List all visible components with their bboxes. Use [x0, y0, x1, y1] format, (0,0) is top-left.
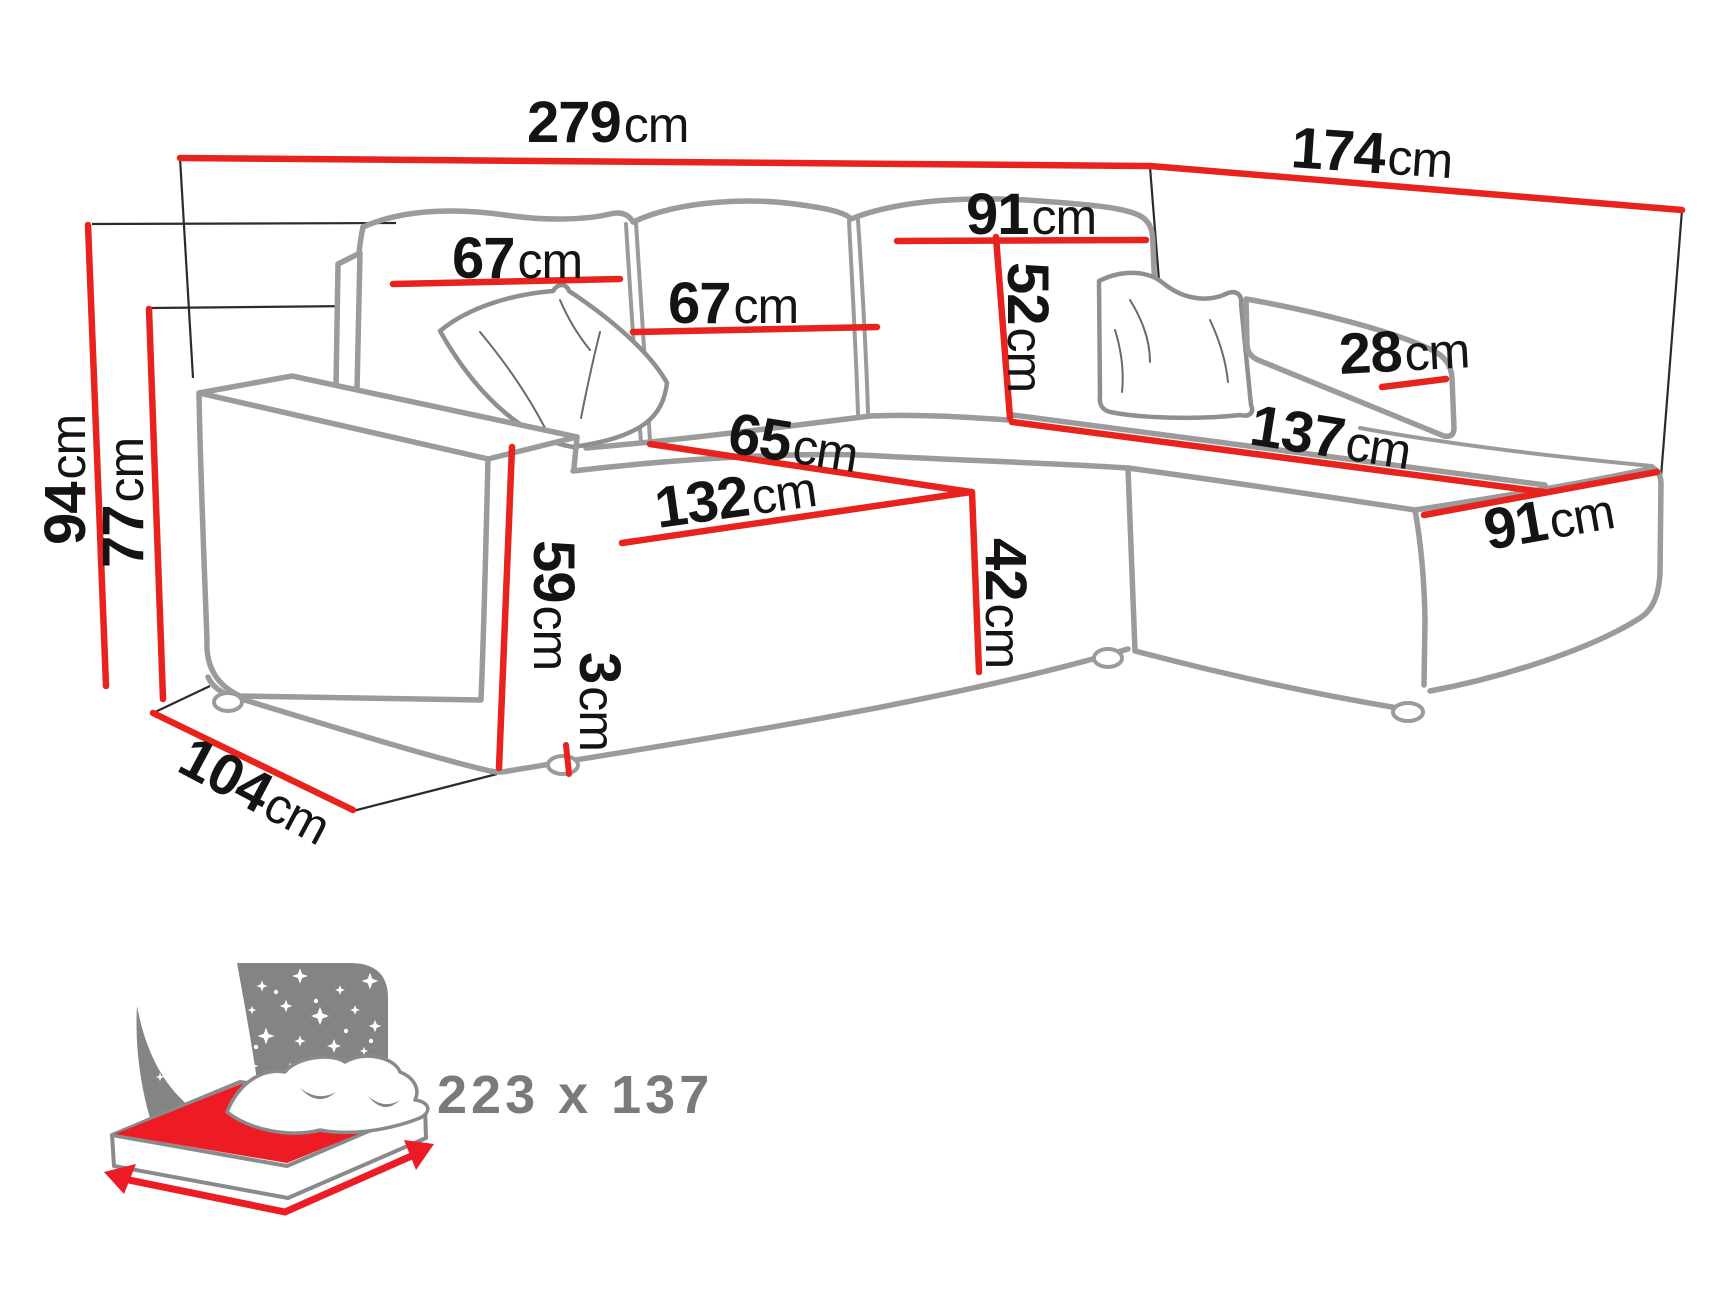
- sleeping-area-size: 223 x 137: [437, 1065, 713, 1125]
- dim-label-seat-height: 42cm: [973, 538, 1038, 668]
- backrest-side-wing: [336, 253, 360, 390]
- sofa-dimension-diagram: 279cm 174cm 94cm 77cm 67cm 67cm 91cm 52c…: [0, 0, 1726, 1295]
- dim-label-leg-height: 3cm: [567, 652, 632, 751]
- armrest-left-inner-edge: [574, 437, 577, 468]
- dim-label-corner-back-width: 91cm: [966, 182, 1096, 247]
- pillow-right: [1099, 273, 1252, 418]
- dim-label-total-width: 279cm: [527, 90, 688, 155]
- dim-label-armrest-height: 59cm: [521, 540, 586, 670]
- dim-label-corner-back-height: 52cm: [995, 262, 1060, 392]
- dim-label-total-height: 94cm: [33, 415, 98, 545]
- dim-label-backrest-height: 77cm: [91, 438, 156, 568]
- dim-label-back-cushion-mid: 67cm: [668, 271, 798, 336]
- dim-label-back-cushion-left: 67cm: [452, 226, 582, 291]
- dim-line-leg-height: [566, 745, 569, 774]
- diagram-canvas: 279cm 174cm 94cm 77cm 67cm 67cm 91cm 52c…: [0, 0, 1726, 1295]
